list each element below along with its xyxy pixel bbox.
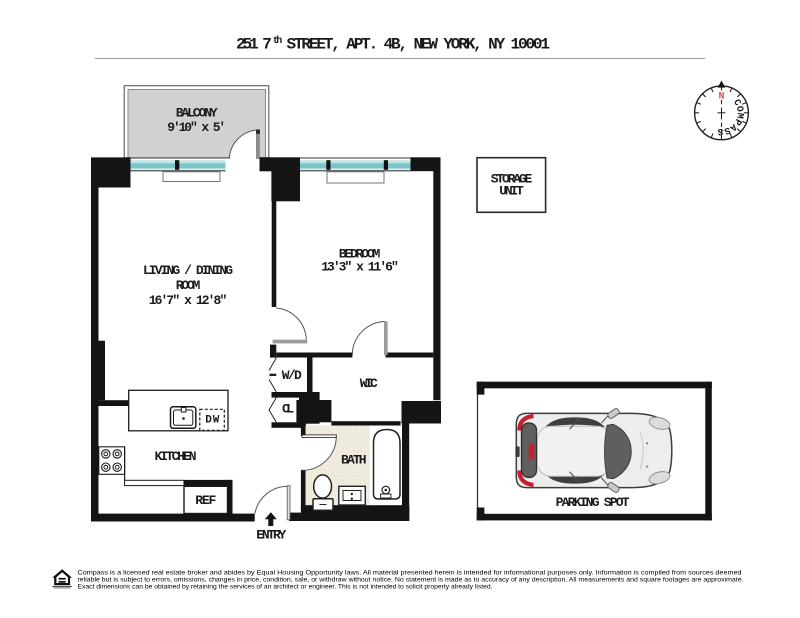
svg-text:S: S: [717, 126, 724, 137]
svg-text:W/D: W/D: [282, 368, 302, 383]
svg-text:DW: DW: [205, 414, 219, 426]
svg-text:PARKING SPOT: PARKING SPOT: [556, 495, 630, 510]
svg-text:KITCHEN: KITCHEN: [155, 449, 197, 464]
svg-text:Compass is a licensed real est: Compass is a licensed real estate broker…: [78, 569, 742, 576]
svg-text:CL: CL: [282, 402, 294, 417]
svg-text:STREET, APT. 4B, NEW YORK, NY: STREET, APT. 4B, NEW YORK, NY 10001: [287, 36, 551, 54]
svg-text:BATH: BATH: [341, 452, 367, 467]
svg-text:UNIT: UNIT: [499, 184, 524, 199]
svg-text:16'7" x 12'8": 16'7" x 12'8": [149, 293, 228, 308]
svg-text:LIVING / DINING: LIVING / DINING: [143, 263, 233, 278]
svg-text:th: th: [273, 35, 283, 47]
svg-text:reliable but is subject to err: reliable but is subject to errors, omiss…: [78, 576, 744, 583]
svg-text:13'3" x 11'6": 13'3" x 11'6": [321, 260, 399, 275]
svg-text:REF: REF: [195, 493, 216, 508]
svg-text:Exact dimensions can be obtain: Exact dimensions can be obtained by reta…: [78, 583, 493, 590]
svg-text:251 7: 251 7: [236, 36, 272, 54]
svg-text:WIC: WIC: [360, 376, 378, 391]
svg-text:9'10" x 5': 9'10" x 5': [167, 120, 226, 135]
svg-text:BALCONY: BALCONY: [176, 106, 218, 121]
svg-text:ENTRY: ENTRY: [256, 528, 286, 543]
svg-text:ROOM: ROOM: [176, 278, 201, 293]
